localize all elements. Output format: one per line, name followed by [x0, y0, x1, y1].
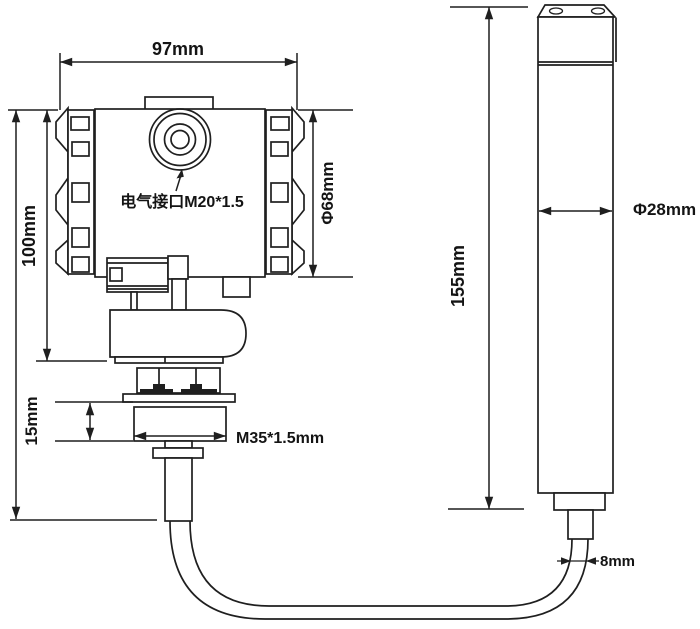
conduit-port-boss: [145, 97, 213, 110]
housing-width-label: 97mm: [152, 39, 204, 59]
technical-drawing-canvas: 97mm 100mm Φ68mm 电气接口M20*1.5 15mm M35*1.…: [0, 0, 700, 629]
dimension-drawing: 97mm 100mm Φ68mm 电气接口M20*1.5 15mm M35*1.…: [0, 0, 700, 629]
probe-length-label: 155mm: [448, 245, 468, 307]
process-connection: [110, 310, 246, 521]
probe-body: [538, 17, 613, 493]
thread-spec-label: M35*1.5mm: [236, 430, 324, 447]
dimension-thread-height: 15mm: [22, 396, 133, 445]
housing-body: [95, 109, 265, 277]
cable-gland-stem: [165, 458, 192, 521]
thread-height-label: 15mm: [22, 396, 41, 445]
transmitter-housing: [56, 97, 304, 277]
neck-body: [110, 310, 246, 357]
probe-diameter-label: Φ28mm: [633, 200, 696, 219]
cable-gland-collar: [153, 448, 203, 458]
dimension-probe-length: 155mm: [448, 7, 528, 509]
cable: [170, 521, 588, 619]
cable-diameter-label: 8mm: [600, 553, 635, 570]
flange-plate: [123, 394, 235, 402]
electrical-port-label: 电气接口M20*1.5: [120, 192, 244, 211]
probe-neck: [568, 510, 593, 539]
housing-left-cap: [56, 108, 94, 274]
housing-height-label: 100mm: [19, 205, 39, 267]
probe: [538, 5, 616, 539]
housing-right-cap: [266, 108, 304, 274]
neck-base-plate: [115, 357, 223, 363]
dimension-housing-diameter: Φ68mm: [298, 110, 353, 277]
probe-collar: [554, 493, 605, 510]
housing-diameter-label: Φ68mm: [318, 161, 337, 224]
